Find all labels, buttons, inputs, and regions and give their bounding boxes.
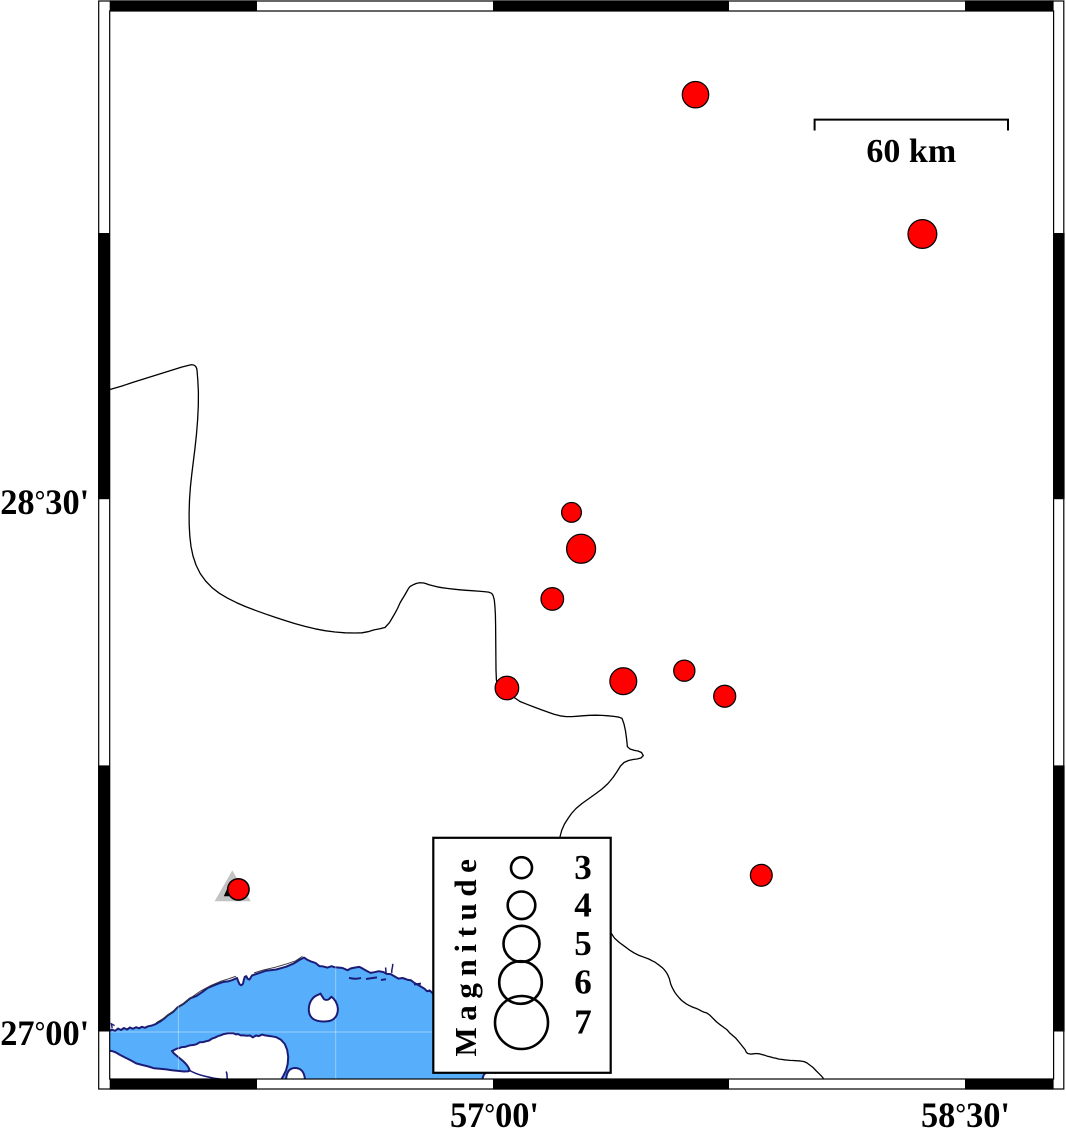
svg-text:57°00': 57°00' (450, 1095, 539, 1128)
svg-text:60 km: 60 km (866, 133, 956, 170)
svg-text:3: 3 (574, 848, 592, 887)
svg-text:4: 4 (574, 886, 592, 925)
svg-text:58°30': 58°30' (921, 1095, 1010, 1128)
svg-text:6: 6 (574, 963, 592, 1002)
svg-text:28°30': 28°30' (0, 482, 89, 522)
svg-text:7: 7 (574, 1003, 592, 1042)
svg-text:27°00': 27°00' (0, 1013, 89, 1053)
svg-text:5: 5 (574, 924, 592, 963)
svg-text:Magnitude: Magnitude (448, 852, 483, 1056)
